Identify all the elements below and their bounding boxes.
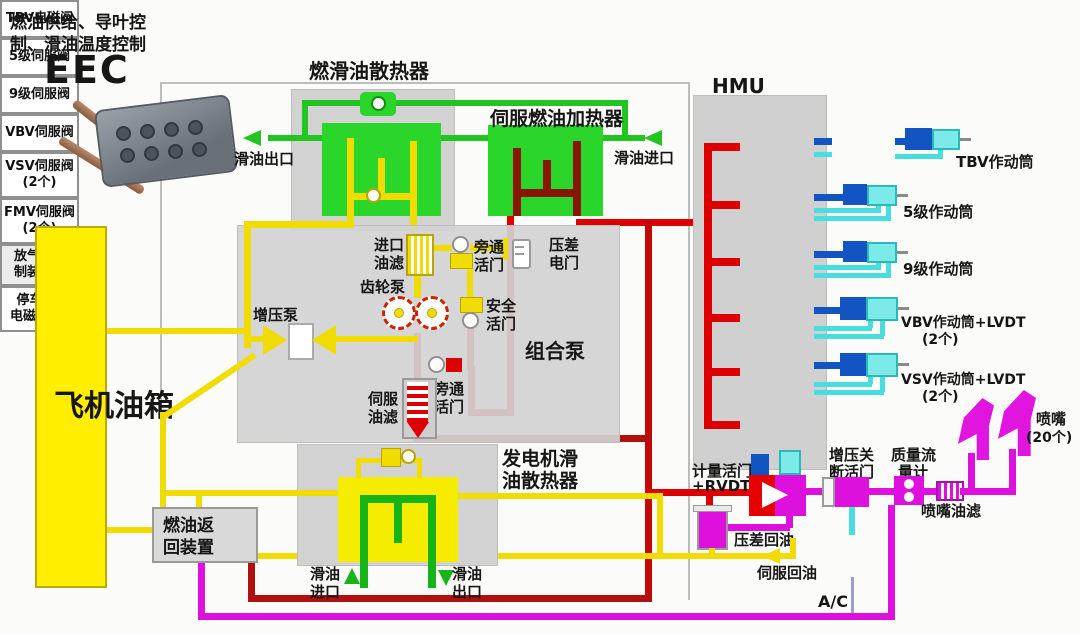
eec-connector [116, 126, 131, 141]
coil-valve [366, 188, 381, 203]
inlet-filter-label2: 油滤 [374, 252, 404, 273]
pipe-hp-fuel [704, 143, 740, 151]
oil-inlet-arrow [644, 130, 662, 146]
pipe-metered-fuel [806, 488, 822, 495]
stage5-actuator-label: 5级作动筒 [903, 201, 973, 222]
nozzle-label: 喷嘴 [1036, 408, 1066, 429]
pipe-hp-fuel [704, 368, 740, 376]
pipe-fuel [467, 267, 473, 299]
pipe-return [814, 216, 891, 221]
tbv-actuator-symbol [932, 129, 960, 150]
pipe-return [886, 263, 891, 275]
pipe-actuation [814, 194, 843, 201]
generator-oil-cooler-title2: 油散热器 [502, 466, 578, 493]
pipe-metered-fuel [924, 488, 936, 495]
safety-valve-symbol [460, 297, 483, 313]
stage9-actuator-label: 9级作动筒 [903, 258, 973, 279]
pipe-hp-fuel [704, 143, 712, 429]
pipe-return [814, 152, 832, 157]
pipe-actuation [814, 362, 840, 369]
pipe-servo-return [790, 538, 796, 555]
pipe-metered-fuel [888, 505, 895, 618]
pipe-oil [360, 495, 368, 588]
dp-return-label: 压差回油 [734, 529, 794, 550]
eec-connector [120, 148, 135, 163]
pipe-fuel [417, 458, 422, 478]
dp-switch-symbol [515, 246, 524, 248]
pipe-return [886, 206, 891, 218]
pipe-oil [601, 135, 645, 141]
servo-filter-label2: 油滤 [368, 406, 398, 427]
vsv-actuator-label: VSV作动筒+LVDT [901, 369, 1025, 389]
pipe-return [938, 150, 943, 156]
fuel-tank-label: 飞机油箱 [54, 385, 88, 429]
gen-oil-in-arrow [344, 568, 360, 584]
tbv-actuator-rod [960, 138, 971, 141]
pipe-fuel [347, 138, 354, 226]
pipe-fuel [410, 141, 417, 237]
bypass-valve1-symbol [452, 236, 469, 253]
pipe-return [880, 321, 885, 336]
vbv-actuator-symbol [840, 297, 866, 320]
pipe-fuel [107, 527, 154, 533]
vsv-actuator-qty: (2个) [922, 386, 959, 406]
pipe-oil [302, 100, 308, 138]
aircraft-fuel-tank: 飞机油箱 [35, 226, 107, 588]
gen-oil-out-label2: 出口 [452, 581, 482, 602]
servo-return-label: 伺服回油 [757, 562, 817, 583]
eec-unit-photo [60, 80, 240, 195]
safety-valve-symbol [462, 312, 479, 329]
servo-filter-arrow [407, 422, 429, 438]
eec-connector [168, 144, 183, 159]
bypass-valve1-symbol [450, 253, 473, 269]
pipe-servo-fuel [543, 160, 551, 197]
pipe-hp-fuel [645, 219, 652, 601]
fmv-servo-valve-label: FMV伺服阀 [4, 205, 75, 221]
tbv-actuator-symbol [905, 128, 932, 150]
pipe-hp-fuel [704, 258, 740, 266]
fuel-nozzle [958, 398, 994, 460]
gear-pump-symbol [394, 308, 404, 318]
eec-connector [144, 146, 159, 161]
eec-body [94, 94, 238, 188]
pipe-metered-fuel [869, 488, 894, 495]
pipe-return [868, 321, 873, 328]
oil-outlet-label: 滑油出口 [234, 148, 294, 169]
vbv-actuator-symbol [866, 297, 898, 321]
dp-return-valve-symbol [693, 505, 732, 512]
inlet-filter-symbol [406, 234, 434, 276]
nozzle-qty-label: (20个) [1026, 427, 1072, 447]
eec-connector [164, 122, 179, 137]
shutoff-valve-symbol [835, 477, 869, 507]
vsv-actuator-rod [898, 363, 909, 366]
servo-filter-symbol [407, 382, 428, 422]
stage5-actuator-rod [897, 194, 908, 197]
safety-valve-label2: 活门 [486, 313, 516, 334]
pipe-metered-fuel [198, 562, 205, 617]
pipe-return [814, 273, 891, 278]
pipe-oil [268, 135, 324, 141]
pipe-return [880, 377, 885, 392]
oil-pump-symbol [371, 96, 386, 111]
boost-pump-symbol [263, 325, 287, 355]
pipe-return [814, 208, 881, 213]
bypass-valve2-symbol [446, 358, 462, 372]
pipe-return [814, 334, 884, 339]
bypass-valve1-label2: 活门 [474, 254, 504, 275]
dp-switch-label2: 电门 [549, 252, 579, 273]
fuel-return-unit-label2: 回装置 [163, 533, 214, 558]
eec-connector [188, 120, 203, 135]
metering-valve-symbol [762, 482, 788, 508]
pipe-servo-fuel [513, 148, 521, 216]
shutoff-valve-symbol [822, 477, 835, 507]
pipe-actuation [814, 307, 840, 314]
servo-fuel-heater-title: 伺服燃油加热器 [490, 104, 623, 131]
pipe-fuel [334, 336, 418, 342]
dp-switch-symbol [515, 253, 524, 255]
pipe-fuel [162, 490, 338, 496]
pipe-hp-fuel [704, 314, 740, 322]
pipe-metered-fuel [968, 453, 975, 491]
vsv-actuator-symbol [866, 353, 898, 377]
eec-connector [192, 142, 207, 157]
pipe-servo-fuel [573, 141, 581, 216]
pipe-return [814, 390, 884, 395]
pipe-fuel [458, 493, 663, 499]
stage9-actuator-symbol [867, 242, 897, 263]
ac-line [851, 577, 854, 613]
pipe-hp-fuel [704, 421, 740, 429]
pipe-hp-fuel [248, 595, 652, 602]
oil-inlet-label: 滑油进口 [614, 147, 674, 168]
tbv-actuator-label: TBV作动筒 [956, 151, 1034, 172]
metering-valve-label2: +RVDT [692, 477, 750, 495]
vbv-actuator-qty: (2个) [922, 329, 959, 349]
hmu-module [693, 95, 827, 470]
pipe-return [849, 507, 855, 535]
stage5-actuator-symbol [867, 185, 897, 206]
boost-pump-symbol [288, 323, 314, 360]
stage9-actuator-rod [897, 251, 908, 254]
pipe-actuation [814, 138, 832, 145]
boost-pump-symbol [312, 325, 336, 355]
vsv-actuator-symbol [840, 353, 866, 376]
stage5-actuator-symbol [843, 184, 867, 205]
gear-pump-symbol [427, 308, 437, 318]
fuel-oil-cooler-title: 燃滑油散热器 [309, 55, 429, 84]
ac-label: A/C [818, 592, 848, 611]
oil-outlet-arrow [243, 130, 261, 146]
pipe-oil [428, 495, 436, 588]
boost-pump-label: 增压泵 [253, 304, 298, 325]
pipe-servo-return [709, 548, 715, 555]
pipe-oil [440, 135, 488, 141]
gen-oil-in-label2: 进口 [310, 581, 340, 602]
pipe-return [814, 326, 872, 331]
pipe-fuel [107, 328, 247, 334]
pipe-fuel [657, 493, 663, 555]
eec-connector [140, 124, 155, 139]
pipe-fuel [244, 221, 354, 228]
vsv-servo-valve-qty: (2个) [23, 175, 57, 191]
flowmeter-symbol [904, 492, 914, 502]
stage9-actuator-symbol [843, 241, 867, 262]
pipe-return [868, 377, 873, 384]
pipe-actuation [814, 251, 843, 258]
pipe-fuel [244, 221, 251, 348]
bypass-valve2-label2: 活门 [434, 396, 464, 417]
gear-pump-label: 齿轮泵 [360, 276, 405, 297]
combination-pump-title: 组合泵 [525, 335, 585, 364]
pipe-hp-fuel [704, 201, 740, 209]
cooler-pump-symbol [401, 449, 416, 464]
pipe-metered-fuel [198, 613, 895, 620]
pipe-return [814, 265, 881, 270]
fmv-port-symbol [779, 450, 801, 475]
vbv-actuator-rod [898, 307, 909, 310]
pipe-metered-fuel [1009, 449, 1016, 491]
bypass-valve2-symbol [428, 356, 445, 373]
pipe-return [895, 154, 943, 159]
cooler-pump-symbol [381, 448, 401, 467]
pipe-return [814, 382, 872, 387]
pipe-oil [394, 495, 402, 543]
flowmeter-symbol [904, 479, 914, 489]
nozzle-filter-label: 喷嘴油滤 [921, 500, 981, 521]
pipe-fuel [196, 490, 202, 508]
fmv-port-symbol [751, 454, 769, 475]
pipe-actuation [895, 138, 905, 145]
frame-line [688, 82, 690, 600]
vbv-actuator-label: VBV作动筒+LVDT [901, 312, 1026, 332]
fuel-system-diagram: 燃油供给、导叶控 制、滑油温度控制 EEC 飞机油箱 燃滑油散热器 滑油出口 滑… [0, 0, 1080, 635]
